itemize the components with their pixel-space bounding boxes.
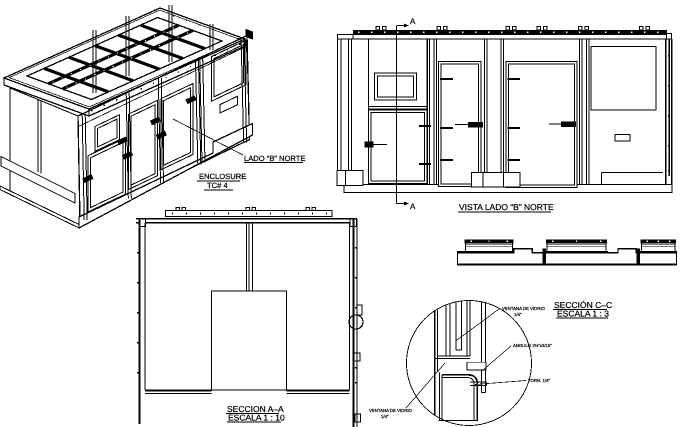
svg-text:1/4”: 1/4” <box>381 414 389 419</box>
svg-text:ANGULO 2½”x3/16”: ANGULO 2½”x3/16” <box>513 343 552 348</box>
svg-text:VISTA LADO “B” NORTE: VISTA LADO “B” NORTE <box>459 202 554 212</box>
svg-text:TC# 4: TC# 4 <box>207 181 228 190</box>
svg-text:VENTANA DE VIDRIO: VENTANA DE VIDRIO <box>502 306 546 311</box>
svg-text:LADO “B” NORTE: LADO “B” NORTE <box>244 154 305 163</box>
svg-text:VENTANA DE VIDRIO: VENTANA DE VIDRIO <box>369 408 413 413</box>
svg-text:A: A <box>410 17 416 26</box>
svg-text:A: A <box>410 202 416 211</box>
svg-text:1/4”: 1/4” <box>514 312 522 317</box>
svg-text:ESCALA 1 : 10: ESCALA 1 : 10 <box>228 413 285 423</box>
svg-text:TORN. 1/4”: TORN. 1/4” <box>528 378 550 383</box>
svg-text:ENCLOSURE: ENCLOSURE <box>199 172 246 181</box>
svg-text:ESCALA 1 : 3: ESCALA 1 : 3 <box>557 309 609 319</box>
